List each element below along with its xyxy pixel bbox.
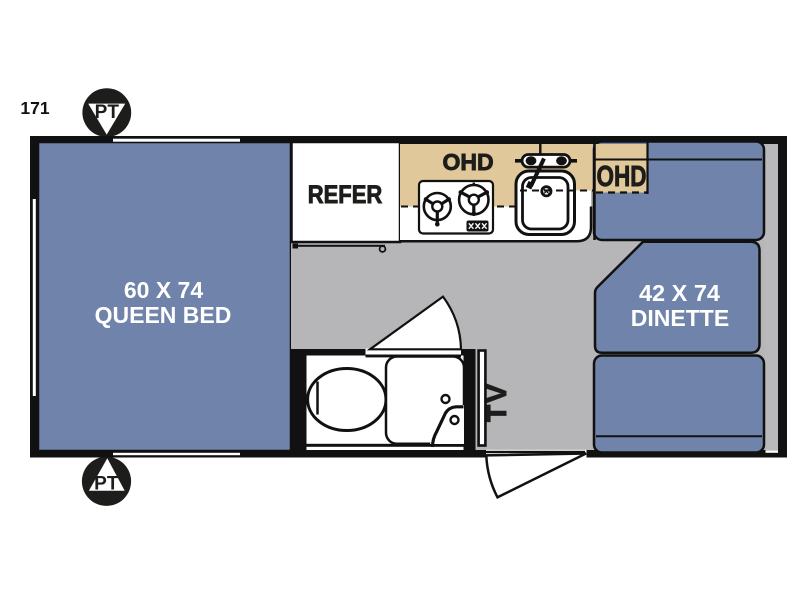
svg-text:60 X 74: 60 X 74 (124, 277, 203, 303)
svg-text:171: 171 (20, 98, 49, 118)
svg-text:42 X 74: 42 X 74 (639, 280, 720, 306)
svg-text:REFER: REFER (308, 181, 383, 209)
svg-text:DINETTE: DINETTE (631, 305, 729, 331)
svg-text:QUEEN BED: QUEEN BED (95, 302, 232, 328)
svg-text:OHD: OHD (597, 161, 647, 193)
svg-text:PT: PT (94, 473, 119, 494)
svg-text:PT: PT (95, 102, 120, 123)
svg-text:OHD: OHD (442, 149, 493, 175)
svg-text:TV: TV (481, 382, 512, 422)
